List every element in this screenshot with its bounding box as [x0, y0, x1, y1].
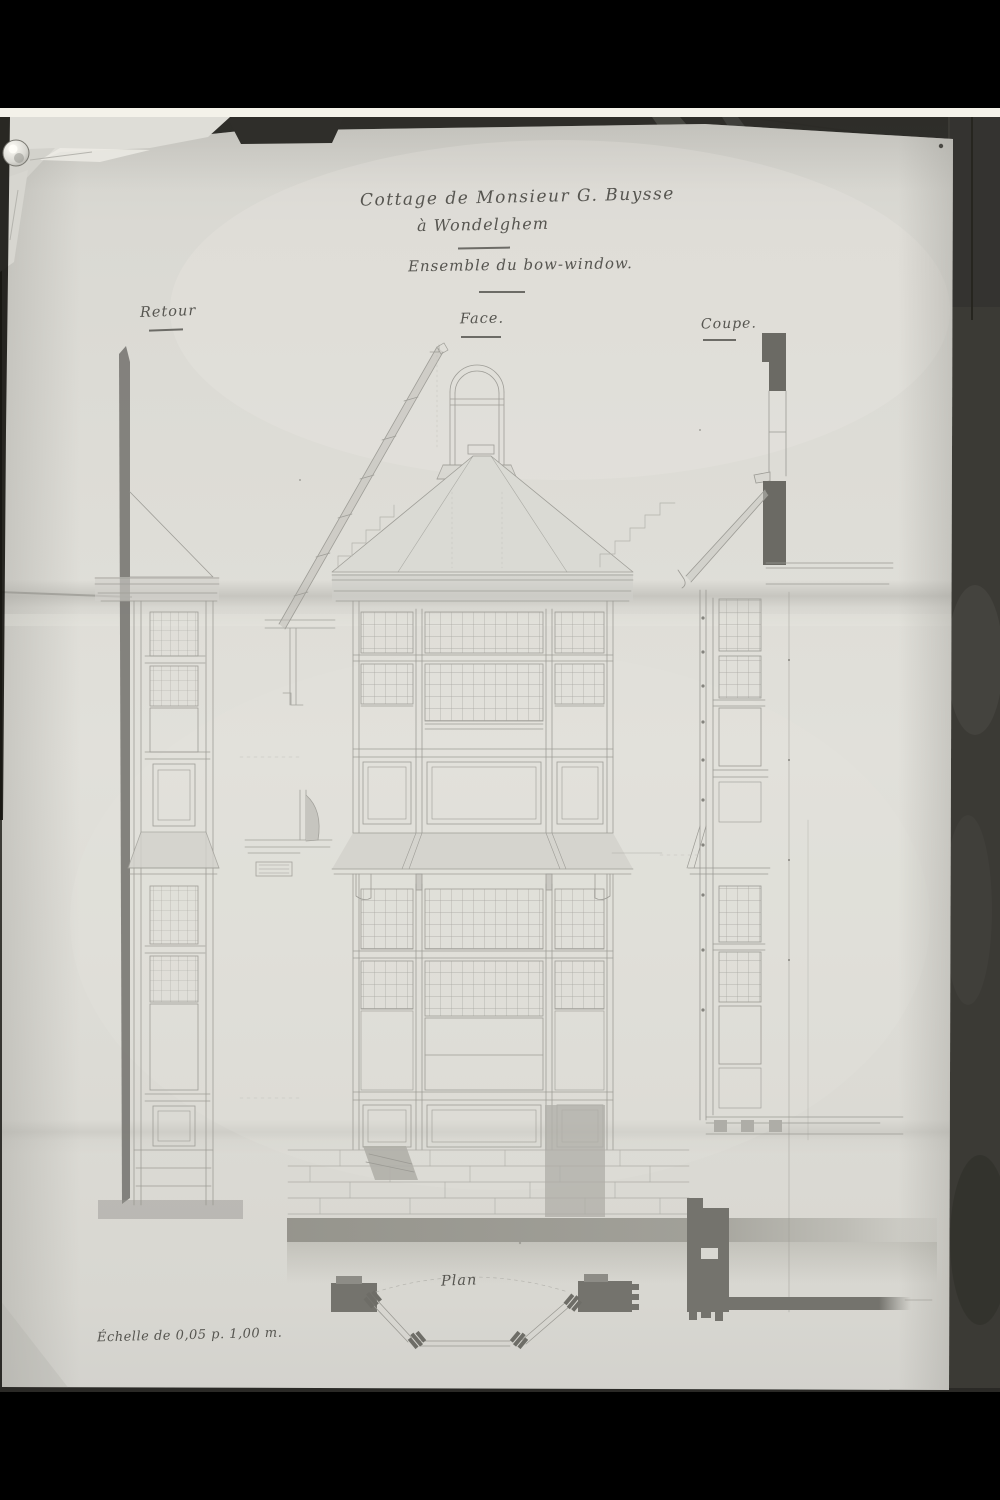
subtitle-underline: [479, 291, 525, 293]
label-face: Face.: [460, 312, 504, 329]
dark-board-top: [228, 117, 344, 144]
label-coupe: Coupe.: [701, 317, 757, 333]
pin-hole-top-right: [939, 144, 943, 148]
coupe-underline: [703, 339, 736, 341]
drawing-pin: [3, 140, 29, 166]
drawing-subtitle: Ensemble du bow-window.: [408, 256, 598, 275]
face-underline: [461, 336, 501, 338]
drawing-title-line2: à Wondelghem: [398, 215, 568, 236]
film-strip-highlight: [0, 108, 1000, 117]
label-retour: Retour: [140, 304, 197, 322]
label-plan: Plan: [441, 1273, 478, 1290]
photograph-of-architectural-drawing: Cottage de Monsieur G. Buysse à Wondelgh…: [0, 0, 1000, 1500]
